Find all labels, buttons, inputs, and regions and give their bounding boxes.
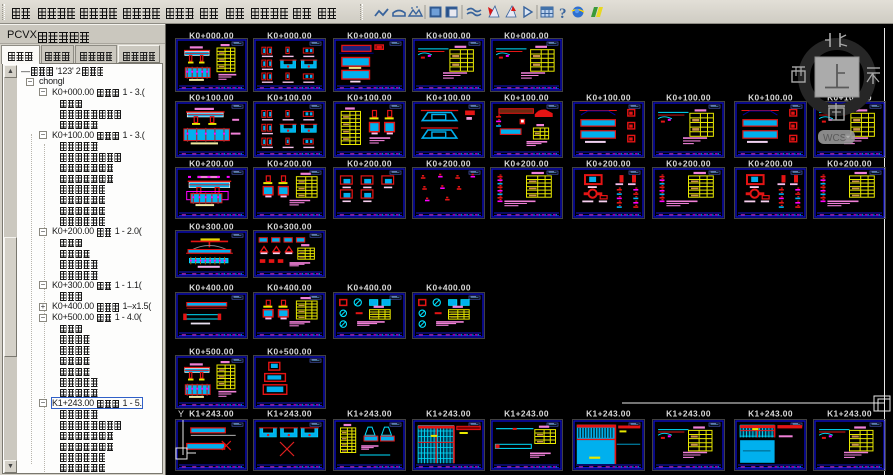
svg-text:?: ? <box>559 6 567 22</box>
